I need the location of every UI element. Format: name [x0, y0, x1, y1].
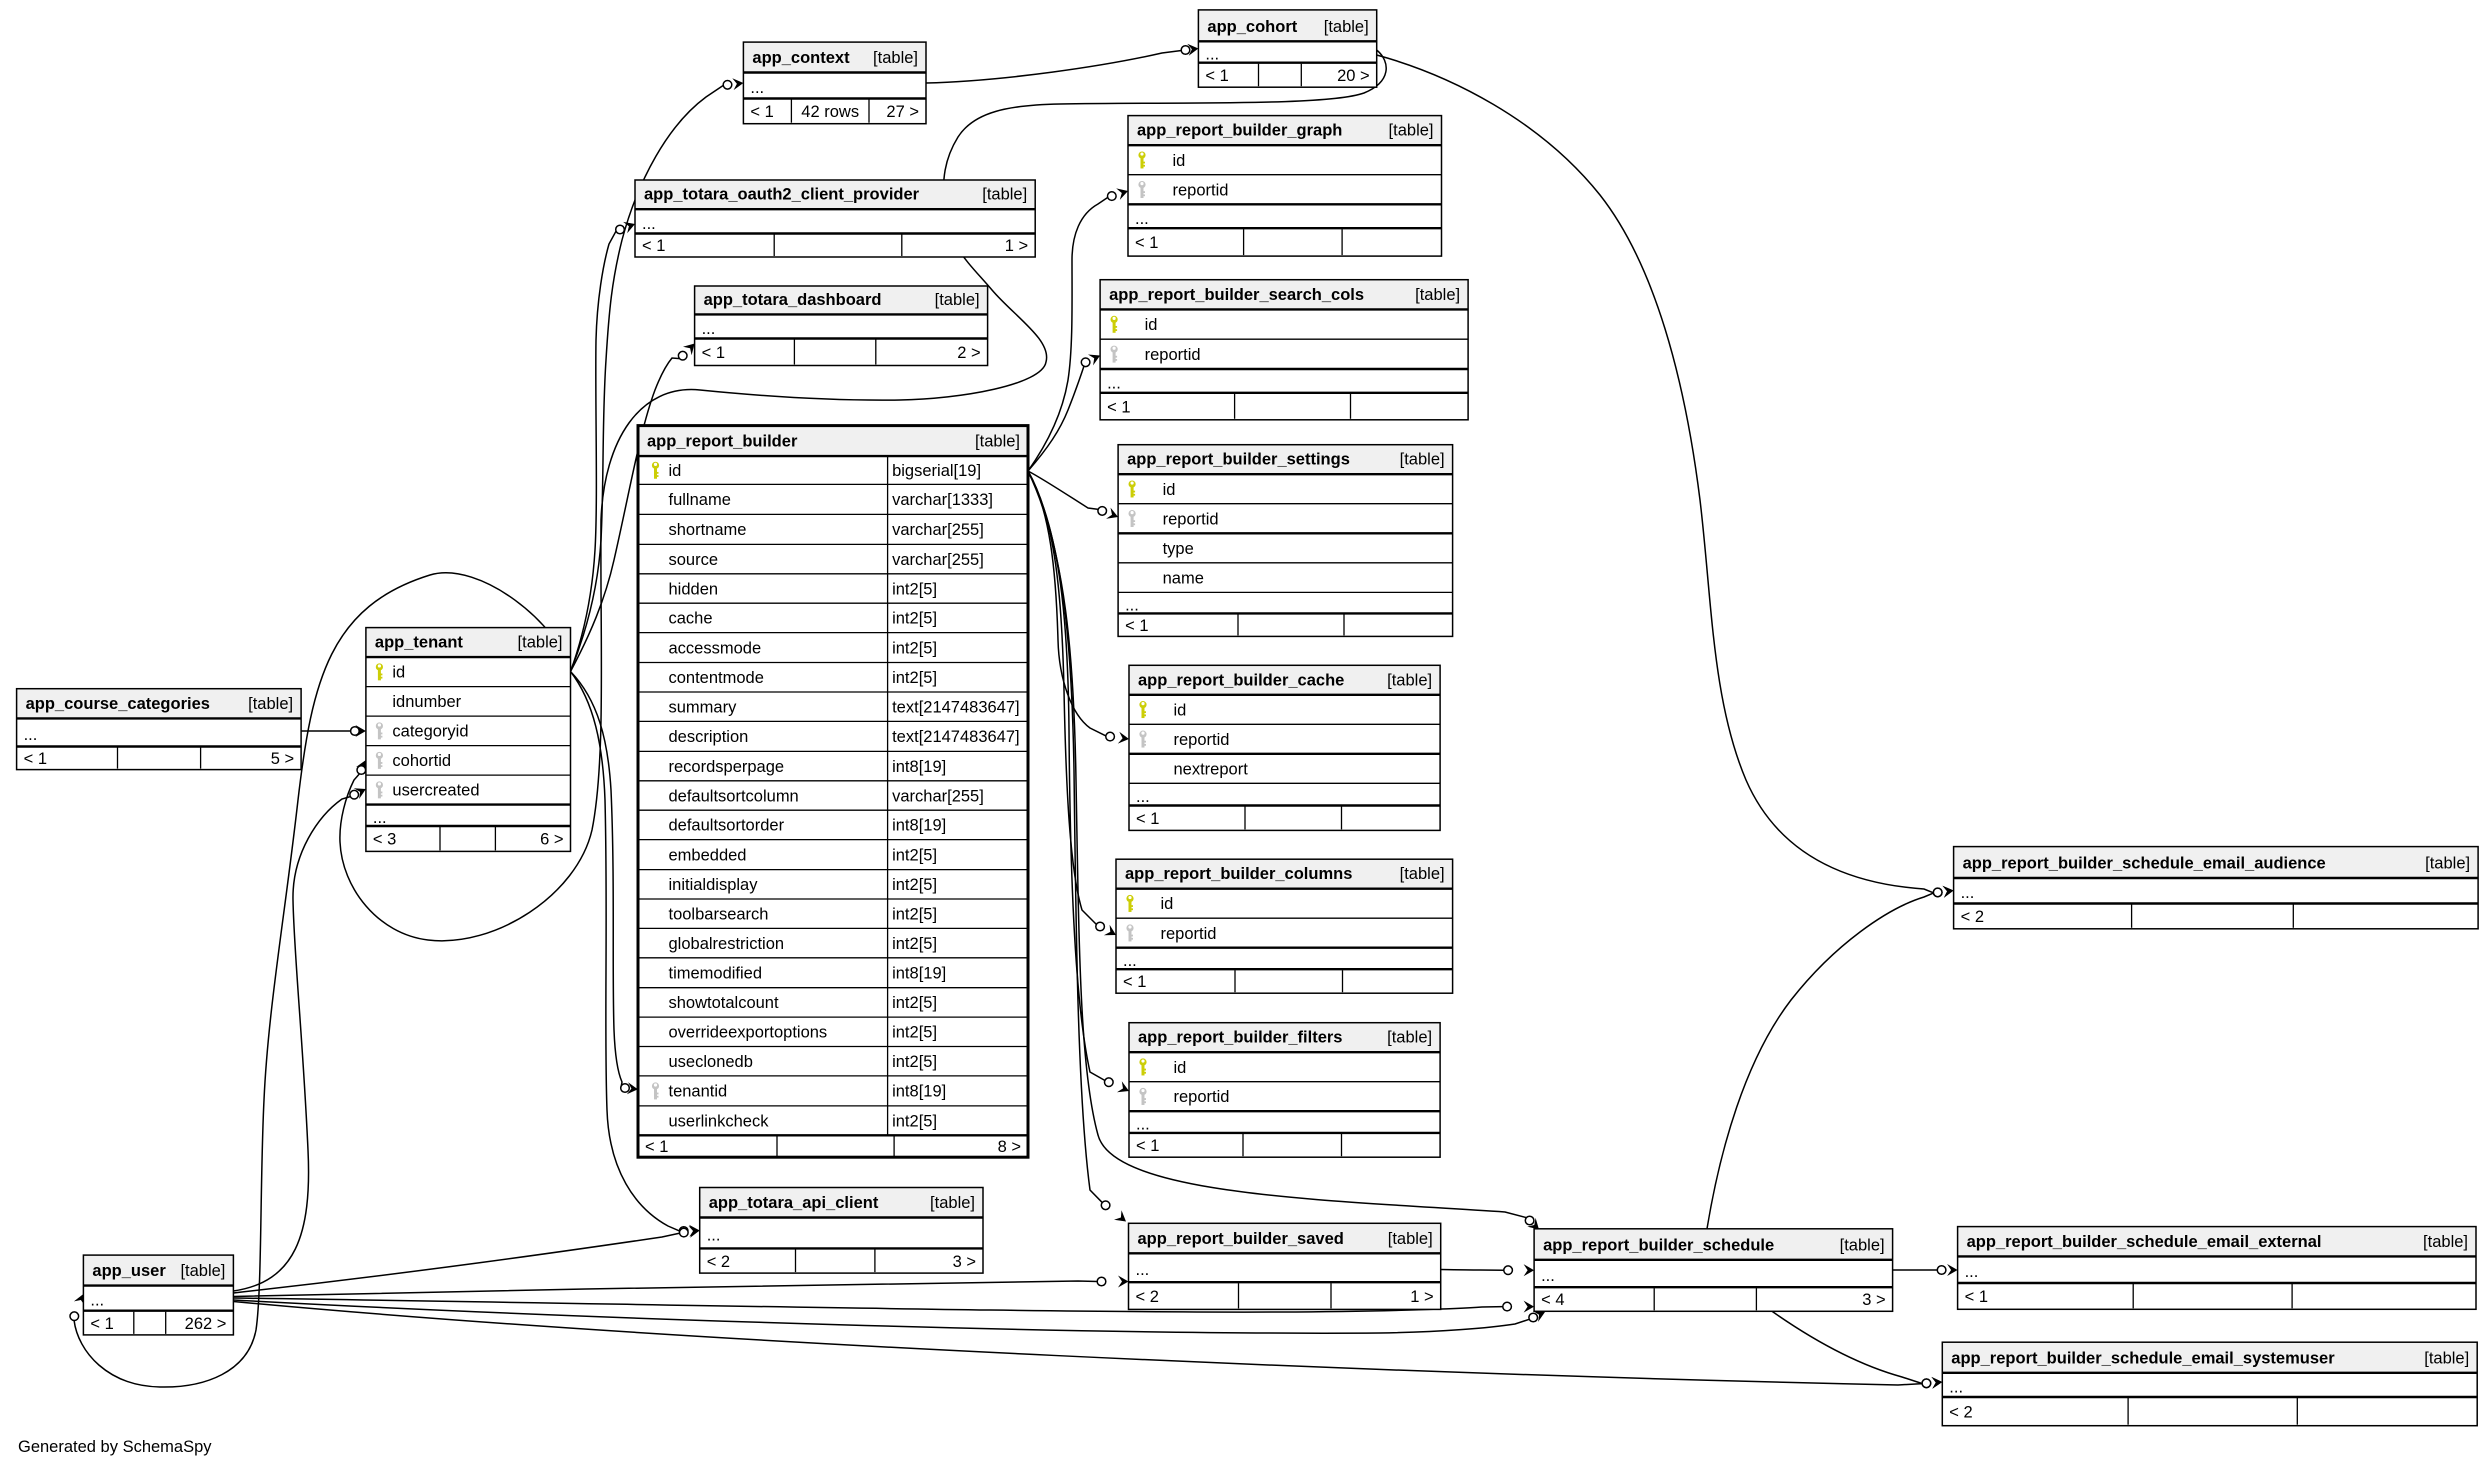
svg-text:overrideexportoptions: overrideexportoptions — [669, 1024, 828, 1042]
svg-text:int8[19]: int8[19] — [892, 758, 946, 776]
svg-text:< 1: < 1 — [702, 344, 725, 362]
svg-text:id: id — [392, 664, 405, 682]
svg-text:< 1: < 1 — [645, 1138, 668, 1156]
svg-text:app_report_builder_settings: app_report_builder_settings — [1127, 451, 1350, 469]
svg-text:[table]: [table] — [1388, 1230, 1433, 1248]
svg-text:text[2147483647]: text[2147483647] — [892, 699, 1020, 717]
svg-text:...: ... — [1136, 788, 1150, 806]
svg-text:[table]: [table] — [518, 634, 563, 652]
svg-text:...: ... — [702, 320, 716, 338]
svg-text:defaultsortcolumn: defaultsortcolumn — [669, 787, 799, 805]
svg-text:8 >: 8 > — [998, 1138, 1021, 1156]
svg-text:nextreport: nextreport — [1174, 760, 1249, 778]
svg-text:...: ... — [750, 79, 764, 97]
svg-text:< 1: < 1 — [90, 1315, 113, 1333]
svg-text:...: ... — [1123, 952, 1137, 970]
svg-text:< 2: < 2 — [707, 1253, 730, 1271]
svg-text:< 1: < 1 — [1205, 67, 1228, 85]
svg-text:...: ... — [1949, 1378, 1963, 1396]
svg-text:app_report_builder: app_report_builder — [647, 433, 798, 451]
svg-text:[table]: [table] — [2423, 1233, 2468, 1251]
svg-text:int2[5]: int2[5] — [892, 580, 937, 598]
svg-text:app_totara_dashboard: app_totara_dashboard — [704, 291, 882, 309]
svg-text:reportid: reportid — [1174, 1088, 1230, 1106]
svg-text:...: ... — [1107, 374, 1121, 392]
svg-text:[table]: [table] — [1415, 286, 1460, 304]
svg-text:6 >: 6 > — [540, 831, 563, 849]
svg-text:toolbarsearch: toolbarsearch — [669, 906, 769, 924]
svg-text:[table]: [table] — [2424, 1349, 2469, 1367]
svg-text:shortname: shortname — [669, 521, 747, 539]
svg-text:[table]: [table] — [2425, 855, 2470, 873]
svg-text:id: id — [1174, 701, 1187, 719]
svg-text:< 1: < 1 — [24, 750, 47, 768]
svg-text:[table]: [table] — [873, 49, 918, 67]
svg-text:...: ... — [1135, 210, 1149, 228]
svg-text:id: id — [1173, 152, 1186, 170]
svg-text:< 1: < 1 — [1136, 1137, 1159, 1155]
svg-text:[table]: [table] — [1400, 865, 1445, 883]
svg-text:< 1: < 1 — [1107, 398, 1130, 416]
svg-text:app_user: app_user — [92, 1262, 166, 1280]
svg-text:app_report_builder_graph: app_report_builder_graph — [1137, 122, 1342, 140]
svg-text:int2[5]: int2[5] — [892, 935, 937, 953]
svg-text:< 1: < 1 — [1136, 810, 1159, 828]
svg-text:app_report_builder_filters: app_report_builder_filters — [1138, 1029, 1342, 1047]
svg-text:< 1: < 1 — [1125, 617, 1148, 635]
svg-text:...: ... — [1541, 1267, 1555, 1285]
svg-text:[table]: [table] — [935, 291, 980, 309]
svg-text:int2[5]: int2[5] — [892, 1112, 937, 1130]
svg-text:3 >: 3 > — [1862, 1291, 1885, 1309]
svg-text:[table]: [table] — [1324, 18, 1369, 36]
svg-text:reportid: reportid — [1145, 346, 1201, 364]
svg-text:[table]: [table] — [1389, 122, 1434, 140]
svg-text:cohortid: cohortid — [392, 752, 451, 770]
svg-text:varchar[255]: varchar[255] — [892, 521, 984, 539]
svg-text:userlinkcheck: userlinkcheck — [669, 1112, 770, 1130]
svg-text:id: id — [1163, 481, 1176, 499]
svg-text:int2[5]: int2[5] — [892, 876, 937, 894]
svg-text:varchar[1333]: varchar[1333] — [892, 491, 993, 509]
svg-text:[table]: [table] — [1840, 1236, 1885, 1254]
svg-text:262 >: 262 > — [185, 1315, 227, 1333]
svg-text:< 1: < 1 — [1965, 1288, 1988, 1306]
svg-text:[table]: [table] — [1400, 451, 1445, 469]
svg-text:app_report_builder_schedule_em: app_report_builder_schedule_email_extern… — [1967, 1233, 2322, 1251]
svg-text:source: source — [669, 551, 719, 569]
svg-text:name: name — [1163, 569, 1204, 587]
svg-text:[table]: [table] — [930, 1194, 975, 1212]
svg-text:int2[5]: int2[5] — [892, 669, 937, 687]
svg-text:categoryid: categoryid — [392, 723, 468, 741]
svg-text:Generated by SchemaSpy: Generated by SchemaSpy — [18, 1438, 212, 1456]
svg-text:bigserial[19]: bigserial[19] — [892, 462, 981, 480]
svg-text:< 1: < 1 — [642, 237, 665, 255]
svg-text:app_course_categories: app_course_categories — [26, 695, 210, 713]
svg-text:app_report_builder_saved: app_report_builder_saved — [1138, 1230, 1344, 1248]
svg-text:reportid: reportid — [1173, 181, 1229, 199]
svg-text:tenantid: tenantid — [669, 1083, 728, 1101]
svg-text:app_context: app_context — [752, 49, 850, 67]
svg-text:recordsperpage: recordsperpage — [669, 758, 785, 776]
svg-text:2 >: 2 > — [957, 344, 980, 362]
svg-text:int2[5]: int2[5] — [892, 639, 937, 657]
svg-text:app_report_builder_columns: app_report_builder_columns — [1125, 865, 1352, 883]
svg-text:42 rows: 42 rows — [801, 103, 859, 121]
svg-text:id: id — [1161, 895, 1174, 913]
svg-text:...: ... — [373, 809, 387, 827]
svg-text:globalrestriction: globalrestriction — [669, 935, 785, 953]
svg-text:app_totara_oauth2_client_provi: app_totara_oauth2_client_provider — [644, 186, 920, 204]
svg-text:...: ... — [707, 1227, 721, 1245]
svg-text:...: ... — [1205, 46, 1219, 64]
svg-text:< 4: < 4 — [1541, 1291, 1564, 1309]
svg-text:hidden: hidden — [669, 580, 719, 598]
svg-text:int8[19]: int8[19] — [892, 817, 946, 835]
svg-text:type: type — [1163, 540, 1194, 558]
svg-text:...: ... — [24, 726, 38, 744]
svg-text:defaultsortorder: defaultsortorder — [669, 817, 785, 835]
svg-text:< 1: < 1 — [1135, 234, 1158, 252]
svg-text:[table]: [table] — [1387, 671, 1432, 689]
svg-text:app_totara_api_client: app_totara_api_client — [709, 1194, 879, 1212]
svg-text:< 1: < 1 — [1123, 973, 1146, 991]
svg-text:varchar[255]: varchar[255] — [892, 787, 984, 805]
svg-text:...: ... — [1125, 596, 1139, 614]
svg-text:app_report_builder_schedule: app_report_builder_schedule — [1543, 1236, 1774, 1254]
svg-text:< 2: < 2 — [1136, 1288, 1159, 1306]
svg-text:reportid: reportid — [1161, 925, 1217, 943]
svg-text:fullname: fullname — [669, 491, 731, 509]
svg-text:...: ... — [1965, 1263, 1979, 1281]
svg-text:id: id — [1174, 1059, 1187, 1077]
svg-text:reportid: reportid — [1163, 510, 1219, 528]
svg-text:app_report_builder_cache: app_report_builder_cache — [1138, 671, 1344, 689]
svg-text:[table]: [table] — [248, 695, 293, 713]
svg-text:int8[19]: int8[19] — [892, 965, 946, 983]
svg-text:app_report_builder_schedule_em: app_report_builder_schedule_email_audien… — [1963, 855, 2326, 873]
svg-text:app_tenant: app_tenant — [375, 634, 464, 652]
svg-text:useclonedb: useclonedb — [669, 1053, 753, 1071]
svg-text:accessmode: accessmode — [669, 639, 762, 657]
svg-text:< 2: < 2 — [1961, 908, 1984, 926]
svg-text:...: ... — [642, 215, 656, 233]
svg-text:app_report_builder_schedule_em: app_report_builder_schedule_email_system… — [1951, 1349, 2335, 1367]
svg-text:initialdisplay: initialdisplay — [669, 876, 759, 894]
svg-text:contentmode: contentmode — [669, 669, 764, 687]
svg-text:varchar[255]: varchar[255] — [892, 551, 984, 569]
svg-text:int2[5]: int2[5] — [892, 1024, 937, 1042]
svg-text:3 >: 3 > — [953, 1253, 976, 1271]
svg-text:27 >: 27 > — [886, 103, 919, 121]
svg-text:int2[5]: int2[5] — [892, 994, 937, 1012]
svg-text:app_report_builder_search_cols: app_report_builder_search_cols — [1109, 286, 1364, 304]
svg-text:showtotalcount: showtotalcount — [669, 994, 779, 1012]
svg-text:int8[19]: int8[19] — [892, 1083, 946, 1101]
svg-text:[table]: [table] — [975, 433, 1020, 451]
svg-text:1 >: 1 > — [1410, 1288, 1433, 1306]
svg-text:id: id — [669, 462, 682, 480]
svg-text:embedded: embedded — [669, 846, 747, 864]
svg-text:description: description — [669, 728, 749, 746]
svg-text:...: ... — [90, 1292, 104, 1310]
svg-text:1 >: 1 > — [1005, 237, 1028, 255]
svg-text:< 3: < 3 — [373, 831, 396, 849]
svg-text:cache: cache — [669, 610, 713, 628]
svg-text:< 1: < 1 — [750, 103, 773, 121]
svg-text:20 >: 20 > — [1337, 67, 1370, 85]
svg-text:timemodified: timemodified — [669, 965, 763, 983]
svg-text:< 2: < 2 — [1949, 1403, 1972, 1421]
svg-text:id: id — [1145, 316, 1158, 334]
svg-text:[table]: [table] — [180, 1262, 225, 1280]
svg-text:int2[5]: int2[5] — [892, 1053, 937, 1071]
svg-text:[table]: [table] — [982, 186, 1027, 204]
svg-text:int2[5]: int2[5] — [892, 906, 937, 924]
svg-text:...: ... — [1136, 1261, 1150, 1279]
svg-text:reportid: reportid — [1174, 731, 1230, 749]
svg-text:5 >: 5 > — [271, 750, 294, 768]
svg-text:...: ... — [1136, 1116, 1150, 1134]
svg-text:summary: summary — [669, 699, 738, 717]
svg-text:text[2147483647]: text[2147483647] — [892, 728, 1020, 746]
svg-text:...: ... — [1961, 884, 1975, 902]
svg-text:app_cohort: app_cohort — [1207, 18, 1297, 36]
svg-text:usercreated: usercreated — [392, 782, 479, 800]
svg-text:[table]: [table] — [1387, 1029, 1432, 1047]
svg-text:int2[5]: int2[5] — [892, 846, 937, 864]
svg-text:idnumber: idnumber — [392, 693, 461, 711]
svg-text:int2[5]: int2[5] — [892, 610, 937, 628]
